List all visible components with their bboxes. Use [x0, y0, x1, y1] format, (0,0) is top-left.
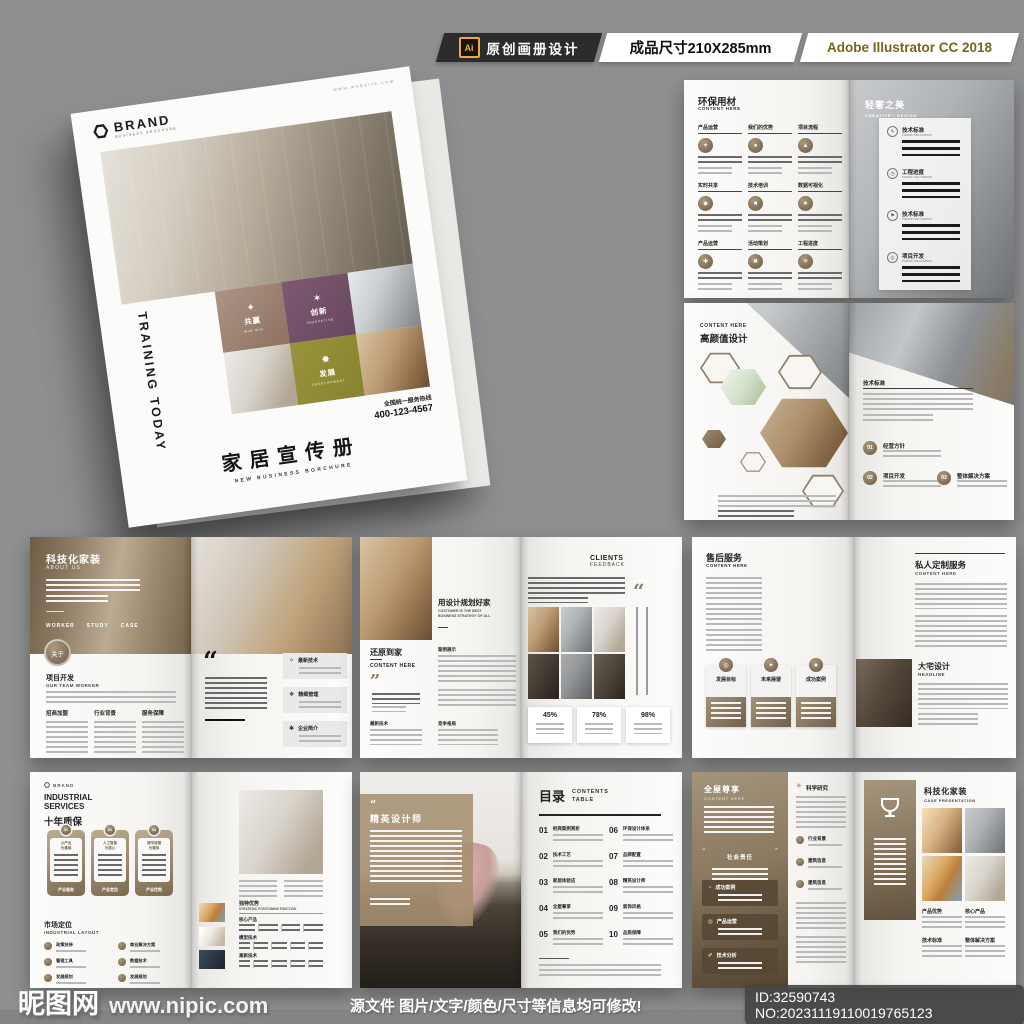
header-badge-app: Adobe Illustrator CC 2018 [800, 33, 1019, 62]
science-title: 科学研究 [806, 784, 828, 792]
panel-item-sub: PURSUE THE COMPANY [902, 134, 960, 137]
feedback-photo [594, 607, 625, 652]
panel-item-label: 项目开发 [902, 252, 960, 260]
text-line-placeholder [634, 723, 662, 734]
mid-item: 行业背景 [796, 836, 842, 849]
spread-beauty-design: CONTENT HERE 高颜值设计 技术标准 [684, 303, 1014, 520]
eco-grid-label: 产品运营 [698, 240, 742, 250]
text-line-placeholder [438, 689, 516, 707]
eco-grid-icon: ▲ [798, 138, 813, 153]
plan-foot-label: 最新技术 [370, 721, 388, 727]
text-line-placeholder [372, 706, 406, 712]
toc-item: 04 全屋尊享 [539, 904, 603, 921]
text-line-placeholder [918, 683, 1008, 709]
cover-side-text: TRAINING TODAY [135, 311, 171, 471]
dark-box-label: 产品运营 [717, 918, 737, 925]
text-line-placeholder [918, 713, 978, 727]
text-line-placeholder [922, 916, 962, 930]
eco-grid-icon: ● [748, 138, 763, 153]
text-line-placeholder [239, 924, 255, 932]
about-h2: 项目开发 [46, 673, 74, 683]
toc-num: 06 [609, 826, 618, 843]
about-subtitle: ABOUT US [46, 565, 81, 571]
dark-box: ◎ 产品运营 [702, 914, 778, 940]
eco-grid-item: 实时共享 ◆ [698, 182, 742, 232]
text-line-placeholder [712, 868, 768, 880]
text-line-placeholder [798, 283, 832, 290]
stat-value: 78% [577, 712, 621, 719]
text-line-placeholder [528, 577, 625, 595]
feedback-photo [561, 654, 592, 699]
advantage-row-label: 模型技术 [239, 935, 257, 941]
case-label: 整体解决方案 [965, 937, 995, 944]
eco-grid-item: 工程进度 ✳ [798, 240, 842, 290]
eco-grid-icon: ✚ [698, 254, 713, 269]
bubble-number: 01 [61, 825, 71, 835]
spread-designer-toc: “ 精英设计师 目录 CONTENTS TABLE 01 经典案例赏析 [360, 772, 682, 988]
thumb-photo [199, 950, 225, 969]
cover-website: www.website.com [333, 78, 396, 92]
hexagon-outline [740, 451, 766, 473]
case-subtitle: CASE PRESENTATION [924, 798, 975, 803]
panel-item: ✎ 技术标准 PURSUE THE COMPANY [887, 126, 960, 156]
text-line-placeholder [528, 597, 588, 603]
footer-id-badge: ID:32590743 NO:20231119110019765123 [745, 985, 1024, 1024]
about-col: 服务保障 [142, 709, 184, 755]
tile-photo-bathroom [347, 264, 421, 335]
text-line-placeholder [623, 912, 673, 921]
bubble-label: 产业定位 [91, 887, 129, 893]
text-line-placeholder [98, 854, 122, 876]
toc-num: 10 [609, 930, 618, 947]
step-circle-02: 02 [863, 471, 877, 485]
cover-title: 家居宣传册 [143, 418, 438, 488]
text-line-placeholder [718, 962, 762, 970]
clients-subtitle: FEEDBACK [590, 562, 625, 568]
layout-item: 政策扶持 [44, 942, 86, 955]
text-line-placeholder [239, 960, 250, 968]
stat-card: 45% [528, 707, 572, 743]
text-line-placeholder [915, 583, 1007, 609]
hexagon-logo-icon [44, 782, 50, 788]
text-line-placeholder [863, 414, 933, 422]
pencil-icon: ✐ [708, 953, 713, 959]
text-line-placeholder [370, 898, 410, 906]
win-icon: ✦ [246, 302, 256, 314]
profile-icon: ✱ [289, 725, 294, 732]
toc-label: 精英设计师 [623, 878, 673, 884]
panel-item-sub: PURSUE THE COMPANY [902, 218, 960, 221]
layout-item-label: 管理工具 [56, 958, 86, 964]
industry-icon [796, 836, 804, 844]
tile-win-sub: WIN-WIN [244, 327, 264, 334]
toc-label: 技术工艺 [553, 852, 603, 858]
text-line-placeholder [883, 450, 941, 458]
whole-brown-panel: 全屋尊享 CONTENT HERE “ 社会责任 ” ◔ 成功案例 [692, 772, 788, 988]
about-col: 招商加盟 [46, 709, 88, 755]
eco-grid-label: 技术培训 [748, 182, 792, 192]
toc-header: 目录 CONTENTS TABLE [539, 786, 609, 805]
divider [915, 553, 1005, 554]
toc-num: 03 [539, 878, 548, 895]
eco-grid-icon: ■ [748, 196, 763, 211]
text-line-placeholder [438, 655, 516, 685]
responsibility-badge: “ 社会责任 ” [704, 846, 776, 880]
layout-item: 管理工具 [44, 958, 86, 971]
quote-icon: ” [775, 848, 778, 855]
text-line-placeholder [798, 225, 832, 232]
text-line-placeholder [130, 950, 160, 955]
spread-about-us: 科技化家装 ABOUT US WORKER STUDY CASE 关于 项目开发… [30, 537, 352, 758]
text-line-placeholder [553, 860, 603, 869]
text-line-placeholder [370, 830, 462, 882]
whole-title: 全屋尊享 [704, 784, 740, 795]
tile-development: ✸ 发展 DEVELOPMENT [290, 334, 365, 405]
text-line-placeholder [205, 677, 267, 709]
clients-title: CLIENTS FEEDBACK [590, 555, 625, 568]
service-card: ★ 成功案例 [796, 665, 836, 727]
toc-item: 09 装饰风格 [609, 904, 673, 921]
text-line-placeholder [46, 579, 140, 592]
divider [438, 627, 448, 628]
header-badge-size: 成品尺寸210X285mm [599, 33, 802, 62]
text-line-placeholder [536, 723, 564, 734]
quote-icon: “ [203, 649, 218, 675]
panel-item-label: 工程进度 [902, 168, 960, 176]
toc-item: 07 品牌配置 [609, 852, 673, 869]
text-line-placeholder [258, 924, 278, 932]
tile-win-label: 共赢 [243, 314, 261, 327]
case-title: 科技化家装 [924, 786, 967, 797]
service-card: ✦ 未来展望 [751, 665, 791, 727]
text-line-placeholder [284, 880, 323, 898]
toc-label: 装饰风格 [623, 904, 673, 910]
bubble-top-text: 城市运营为载体 [138, 841, 170, 851]
text-line-placeholder [308, 942, 323, 950]
segment-row [239, 960, 323, 968]
hexagon-outline [778, 353, 822, 391]
luxury-panel: ✎ 技术标准 PURSUE THE COMPANY ◷ 工程进度 PURSUE … [879, 118, 971, 290]
eco-grid-icon: ✖ [748, 254, 763, 269]
text-line-placeholder [718, 495, 836, 508]
toc-num: 01 [539, 826, 548, 843]
quote-icon: “ [702, 848, 705, 855]
beauty-eyebrow: CONTENT HERE [700, 323, 747, 329]
badge-design-label: 原创画册设计 [487, 38, 580, 58]
panel-item-sub: PURSUE THE COMPANY [902, 260, 960, 263]
text-line-placeholder [56, 966, 86, 971]
pen-icon: ✎ [887, 126, 898, 137]
spread-industrial-services: BRAND INDUSTRIALSERVICES 十年质保 01 以产业为基础 … [30, 772, 352, 988]
panel-item: ⚑ 技术标准 PURSUE THE COMPANY [887, 210, 960, 240]
warm-room-photo [360, 537, 432, 640]
quote-icon: ” [370, 669, 380, 694]
text-line-placeholder [748, 272, 792, 281]
text-line-placeholder [299, 735, 341, 743]
text-line-placeholder [706, 603, 762, 625]
layout-h2: 市场定位 [44, 920, 72, 930]
data-icon [118, 958, 126, 966]
text-line-placeholder [863, 393, 973, 411]
divider [863, 388, 973, 389]
text-line-placeholder [798, 272, 842, 281]
text-line-placeholder [585, 723, 613, 734]
text-line-placeholder [748, 167, 782, 174]
toc-subtitle: CONTENTS TABLE [572, 788, 609, 805]
trophy-icon [881, 798, 899, 812]
eco-grid-label: 产品运营 [698, 124, 742, 134]
eco-grid-label: 我们的优势 [748, 124, 792, 134]
bubble-card: 03 城市运营为载体 产业优势 [135, 830, 173, 896]
text-line-placeholder [539, 964, 661, 977]
bubble-card: 02 人工智能为核心 产业定位 [91, 830, 129, 896]
text-line-placeholder [808, 888, 842, 893]
building-icon [796, 858, 804, 866]
tile-development-sub: DEVELOPMENT [312, 378, 346, 387]
text-line-placeholder [796, 902, 846, 930]
case-label: 技术标准 [922, 937, 942, 944]
tool-icon [44, 958, 52, 966]
toc-item: 01 经典案例赏析 [539, 826, 603, 843]
case-photo [965, 808, 1005, 853]
text-line-placeholder [796, 936, 846, 964]
text-line-placeholder [796, 796, 846, 828]
bubble-top-text: 人工智能为核心 [94, 841, 126, 851]
feedback-photo [528, 654, 559, 699]
text-line-placeholder [718, 510, 794, 517]
innovative-icon: ✶ [312, 293, 322, 305]
eco-grid-item: 我们的优势 ● [748, 124, 792, 174]
quote-icon: “ [633, 581, 645, 601]
divider [370, 659, 382, 660]
toc-num: 05 [539, 930, 548, 947]
bubble-number: 03 [149, 825, 159, 835]
whole-subtitle: CONTENT HERE [704, 796, 745, 801]
eco-grid-icon: ✦ [698, 138, 713, 153]
industrial-title: INDUSTRIALSERVICES [44, 794, 92, 812]
bubble-card: 01 以产业为基础 产业服务 [47, 830, 85, 896]
divider [239, 913, 323, 914]
text-line-placeholder [46, 595, 108, 603]
mini-brand-logo: BRAND [44, 782, 74, 788]
text-line-placeholder [253, 960, 268, 968]
text-line-placeholder [902, 266, 960, 282]
tile-win: ✦ 共赢 WIN-WIN [215, 282, 290, 353]
text-line-placeholder [698, 283, 732, 290]
text-line-placeholder [874, 838, 906, 886]
trophy-card [864, 780, 916, 920]
growth-icon [118, 974, 126, 982]
feedback-photo [528, 607, 559, 652]
about-col-label: 行业背景 [94, 709, 136, 717]
goal-icon: ◎ [719, 658, 733, 672]
text-line-placeholder [808, 866, 842, 871]
case-icon: ★ [809, 658, 823, 672]
mansion-subtitle: HEADLINE [918, 672, 945, 677]
text-line-placeholder [748, 283, 782, 290]
text-line-placeholder [290, 960, 305, 968]
cover-title-block: 家居宣传册 NEW BUSINESS BORCHURE [143, 418, 439, 497]
feature-box-label: 企业简介 [298, 725, 318, 732]
staircase-photo [191, 537, 352, 654]
watermark-url: www.nipic.com [109, 993, 268, 1019]
mansion-title: 大宅设计 [918, 661, 950, 672]
toc-num: 08 [609, 878, 618, 895]
toc-label: 全屋尊享 [553, 904, 603, 910]
text-line-placeholder [46, 721, 88, 755]
toc-num: 07 [609, 852, 618, 869]
text-line-placeholder [965, 945, 1005, 959]
hexagon-photo-bedroom [760, 395, 848, 471]
text-line-placeholder [698, 272, 742, 281]
badge-size-label: 成品尺寸210X285mm [630, 37, 772, 58]
eco-grid-item: 数据可视化 ★ [798, 182, 842, 232]
feature-box: ❖ 精细管理 [283, 687, 347, 713]
feature-box: ✱ 企业简介 [283, 721, 347, 747]
watermark-site: 昵图网 [18, 982, 99, 1021]
toc-item: 10 品质保障 [609, 930, 673, 947]
text-line-placeholder [553, 834, 603, 843]
toc-label: 品牌配置 [623, 852, 673, 858]
text-line-placeholder [299, 701, 341, 709]
custom-subtitle: CONTENT HERE [915, 571, 957, 576]
text-line-placeholder [965, 916, 1005, 930]
step-label: 经营方针 [883, 442, 905, 450]
divider [205, 719, 245, 721]
mid-item: 建筑信息 [796, 880, 842, 893]
text-line-placeholder [706, 629, 762, 651]
bubble-top-text: 以产业为基础 [50, 841, 82, 851]
tech-icon: ✧ [289, 657, 294, 664]
eco-grid-icon: ★ [798, 196, 813, 211]
text-line-placeholder [902, 182, 960, 198]
spread-whole-house: 全屋尊享 CONTENT HERE “ 社会责任 ” ◔ 成功案例 [692, 772, 1016, 988]
text-line-placeholder [902, 224, 960, 240]
clock-icon: ◔ [708, 885, 711, 891]
advantage-row-label: 核心产品 [239, 917, 257, 923]
text-line-placeholder [748, 156, 792, 165]
layout-item-label: 数据技术 [130, 958, 160, 964]
bubble-number: 02 [105, 825, 115, 835]
text-line-placeholder [438, 729, 498, 745]
text-line-placeholder [46, 691, 176, 704]
text-line-placeholder [372, 693, 420, 704]
layout-item: 数据技术 [118, 958, 160, 971]
eco-grid-icon: ✳ [798, 254, 813, 269]
eco-grid-label: 数据可视化 [798, 182, 842, 192]
text-line-placeholder [756, 702, 786, 722]
text-line-placeholder [281, 924, 301, 932]
segment-row [239, 924, 323, 932]
mid-item-label: 建筑信息 [808, 858, 842, 864]
text-line-placeholder [798, 156, 842, 165]
craft-photo [856, 659, 912, 727]
mid-item-label: 建筑信息 [808, 880, 842, 886]
thumb-photo [199, 903, 225, 922]
text-line-placeholder [808, 844, 842, 849]
panel-item: ◎ 项目开发 PURSUE THE COMPANY [887, 252, 960, 282]
text-line-placeholder [623, 860, 673, 869]
about-title: 科技化家装 [46, 551, 101, 566]
text-line-placeholder [718, 894, 762, 902]
toc-item: 03 家居体验店 [539, 878, 603, 895]
eco-grid-icon: ◆ [698, 196, 713, 211]
about-badge: 关于 [44, 639, 71, 666]
layout-item: 商业解决方案 [118, 942, 160, 955]
layout-h2-sub: INDUSTRIAL LAYOUT [44, 930, 99, 935]
text-line-placeholder [698, 225, 732, 232]
vertical-rule-pair [636, 607, 648, 695]
text-line-placeholder [706, 577, 762, 599]
footer-notice: 源文件 图片/文字/颜色/尺寸等信息均可修改! [350, 995, 642, 1016]
flag-icon: ⚑ [887, 210, 898, 221]
case-photo [965, 856, 1005, 901]
eco-grid-item: 产品运营 ✚ [698, 240, 742, 290]
science-icon: ✳ [796, 782, 802, 790]
text-line-placeholder [623, 938, 673, 947]
text-line-placeholder [748, 225, 782, 232]
service-card-label: 发展目标 [706, 676, 746, 683]
text-line-placeholder [370, 729, 422, 745]
text-line-placeholder [801, 702, 831, 722]
text-line-placeholder [553, 938, 603, 947]
text-line-placeholder [56, 950, 86, 955]
luxury-title: 轻奢之美 CREATIVE / DESIGN [865, 98, 917, 118]
menu-item: CASE [121, 623, 139, 629]
text-line-placeholder [698, 156, 742, 165]
case-photo [922, 856, 962, 901]
advantage-h1: 独特优势 [239, 900, 259, 907]
toc-item: 02 技术工艺 [539, 852, 603, 869]
divider [539, 814, 661, 816]
text-line-placeholder [271, 960, 286, 968]
stat-value: 45% [528, 712, 572, 719]
eco-grid-label: 工程进度 [798, 240, 842, 250]
hexagon-logo-icon [92, 123, 109, 140]
text-line-placeholder [698, 214, 742, 223]
manage-icon: ❖ [289, 691, 294, 698]
feedback-photo [594, 654, 625, 699]
plan-icon [44, 974, 52, 982]
advantage-row-label: 高新技术 [239, 953, 257, 959]
feature-box-label: 精细管理 [298, 691, 318, 698]
case-photo [922, 808, 962, 853]
plan-h2: 还原到家 [370, 647, 402, 658]
layout-item-label: 发展规划 [56, 974, 86, 980]
poster-canvas: Ai 原创画册设计 成品尺寸210X285mm Adobe Illustrato… [0, 0, 1024, 1024]
brand-logo: BRAND BUSINESS BROCHURE [92, 111, 177, 141]
solution-icon [118, 942, 126, 950]
text-line-placeholder [748, 214, 792, 223]
target-icon: ◎ [887, 252, 898, 263]
panel-item: ◷ 工程进度 PURSUE THE COMPANY [887, 168, 960, 198]
feature-box: ✧ 最新技术 [283, 653, 347, 679]
text-line-placeholder [303, 924, 323, 932]
layout-item-label: 商业解决方案 [130, 942, 160, 948]
tile-innovative: ✶ 创新 INNOVATIVE [281, 273, 356, 344]
about-h2-sub: OUR TEAM WORKER [46, 683, 99, 688]
mini-brand-name: BRAND [53, 783, 74, 788]
text-line-placeholder [54, 854, 78, 876]
text-line-placeholder [299, 667, 341, 675]
step-circle-03: 03 [937, 471, 951, 485]
toc-item: 05 我们的优势 [539, 930, 603, 947]
case-label: 核心产品 [965, 908, 985, 915]
divider [539, 958, 569, 959]
target-icon: ◎ [708, 919, 713, 925]
text-line-placeholder [94, 721, 136, 755]
mid-item-label: 行业背景 [808, 836, 842, 842]
